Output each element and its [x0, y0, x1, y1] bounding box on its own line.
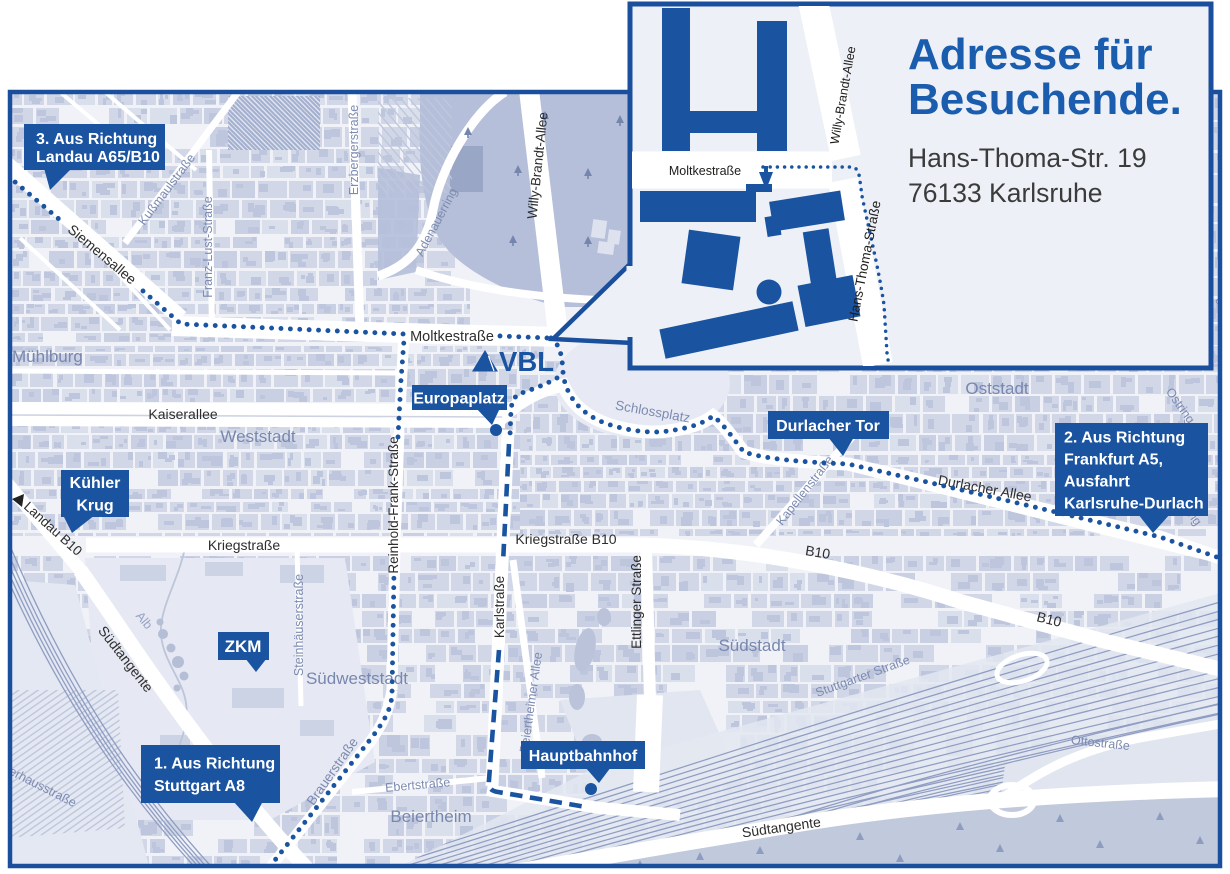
- svg-text:Moltkestraße: Moltkestraße: [669, 164, 741, 178]
- svg-text:Ausfahrt: Ausfahrt: [1064, 473, 1130, 490]
- svg-text:Franz-Lust-Straße: Franz-Lust-Straße: [201, 196, 215, 297]
- svg-text:Reinhold-Frank-Straße: Reinhold-Frank-Straße: [386, 436, 401, 573]
- svg-text:2. Aus Richtung: 2. Aus Richtung: [1064, 429, 1185, 446]
- svg-text:Kühler: Kühler: [70, 475, 121, 492]
- svg-text:Durlacher Tor: Durlacher Tor: [776, 418, 880, 435]
- svg-text:Kriegstraße: Kriegstraße: [208, 537, 281, 553]
- svg-text:76133 Karlsruhe: 76133 Karlsruhe: [908, 178, 1102, 208]
- svg-text:Frankfurt A5,: Frankfurt A5,: [1064, 451, 1163, 468]
- svg-text:3. Aus Richtung: 3. Aus Richtung: [36, 131, 157, 148]
- svg-text:Beiertheim: Beiertheim: [390, 807, 471, 826]
- svg-text:Europaplatz: Europaplatz: [413, 390, 505, 407]
- svg-text:Besuchende.: Besuchende.: [908, 75, 1182, 124]
- svg-text:Krug: Krug: [76, 498, 113, 515]
- svg-text:Erzbergerstraße: Erzbergerstraße: [347, 105, 361, 195]
- svg-text:Ettlinger Straße: Ettlinger Straße: [629, 555, 644, 649]
- svg-text:Karlsruhe-Durlach: Karlsruhe-Durlach: [1064, 495, 1204, 512]
- svg-text:Südstadt: Südstadt: [718, 636, 785, 655]
- svg-text:Moltkestraße: Moltkestraße: [410, 329, 494, 345]
- svg-text:Karlstraße: Karlstraße: [492, 576, 507, 638]
- svg-text:Adresse für: Adresse für: [908, 30, 1153, 79]
- svg-text:Landau A65/B10: Landau A65/B10: [36, 149, 160, 166]
- svg-text:Weststadt: Weststadt: [220, 427, 296, 446]
- svg-text:Oststadt: Oststadt: [965, 379, 1029, 398]
- svg-text:ZKM: ZKM: [225, 637, 262, 656]
- svg-text:VBL: VBL: [499, 346, 554, 377]
- svg-text:1. Aus Richtung: 1. Aus Richtung: [154, 756, 275, 773]
- svg-text:Mühlburg: Mühlburg: [12, 347, 83, 366]
- svg-text:Kriegstraße B10: Kriegstraße B10: [515, 531, 616, 547]
- svg-text:Stuttgart A8: Stuttgart A8: [154, 778, 245, 795]
- svg-text:Hauptbahnhof: Hauptbahnhof: [529, 748, 638, 765]
- svg-text:Hans-Thoma-Str. 19: Hans-Thoma-Str. 19: [908, 143, 1147, 173]
- svg-text:Kaiserallee: Kaiserallee: [148, 406, 217, 422]
- svg-text:Steinhäuserstraße: Steinhäuserstraße: [292, 574, 306, 676]
